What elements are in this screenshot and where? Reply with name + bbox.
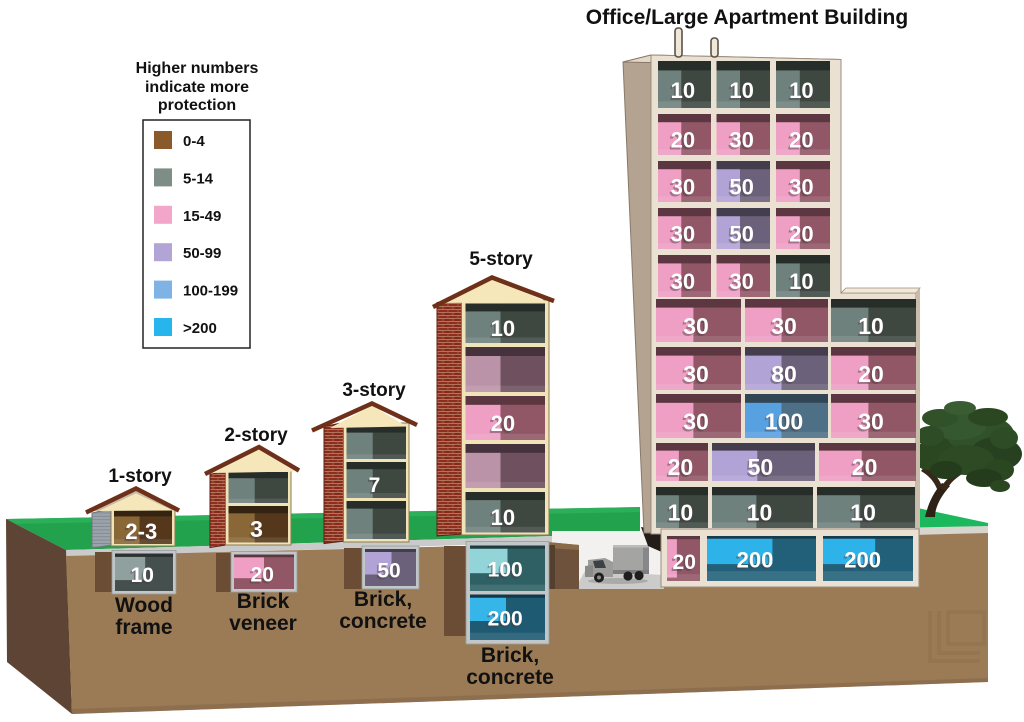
svg-text:10: 10 xyxy=(668,500,694,526)
svg-text:Brick,: Brick, xyxy=(481,644,539,667)
svg-text:2-3: 2-3 xyxy=(125,519,157,544)
svg-text:200: 200 xyxy=(844,547,881,572)
svg-text:10: 10 xyxy=(850,500,876,526)
svg-text:7: 7 xyxy=(369,474,381,497)
svg-text:5-story: 5-story xyxy=(469,249,533,270)
svg-text:20: 20 xyxy=(668,454,694,480)
svg-text:10: 10 xyxy=(729,78,753,103)
svg-text:10: 10 xyxy=(131,564,154,587)
svg-text:Office/Large Apartment Buildin: Office/Large Apartment Building xyxy=(586,6,908,29)
svg-text:20: 20 xyxy=(852,454,878,480)
svg-text:1-story: 1-story xyxy=(108,466,172,487)
svg-text:10: 10 xyxy=(491,505,515,530)
svg-text:>200: >200 xyxy=(183,320,217,337)
svg-text:30: 30 xyxy=(683,361,709,387)
svg-text:3-story: 3-story xyxy=(342,380,406,401)
svg-text:20: 20 xyxy=(789,221,813,246)
svg-text:10: 10 xyxy=(789,269,813,294)
svg-text:Higher numbers: Higher numbers xyxy=(136,60,259,77)
svg-text:200: 200 xyxy=(737,547,774,572)
svg-text:200: 200 xyxy=(488,608,523,631)
svg-text:30: 30 xyxy=(683,313,709,339)
svg-text:50: 50 xyxy=(729,174,753,199)
svg-text:10: 10 xyxy=(671,78,695,103)
svg-text:100: 100 xyxy=(488,559,523,582)
svg-text:20: 20 xyxy=(491,411,515,436)
svg-text:80: 80 xyxy=(771,361,797,387)
svg-text:10: 10 xyxy=(747,500,773,526)
svg-text:50: 50 xyxy=(729,221,753,246)
svg-text:Brick: Brick xyxy=(237,590,290,613)
svg-text:30: 30 xyxy=(671,174,695,199)
svg-text:veneer: veneer xyxy=(229,612,297,635)
svg-text:10: 10 xyxy=(789,78,813,103)
svg-text:30: 30 xyxy=(789,174,813,199)
svg-text:10: 10 xyxy=(491,316,515,341)
svg-text:50-99: 50-99 xyxy=(183,245,221,262)
svg-text:5-14: 5-14 xyxy=(183,170,214,187)
svg-text:15-49: 15-49 xyxy=(183,208,221,225)
svg-text:concrete: concrete xyxy=(466,666,554,689)
svg-text:2-story: 2-story xyxy=(224,425,288,446)
svg-text:20: 20 xyxy=(858,361,884,387)
svg-text:50: 50 xyxy=(377,559,400,582)
svg-text:50: 50 xyxy=(748,454,774,480)
svg-text:30: 30 xyxy=(858,409,884,435)
svg-text:30: 30 xyxy=(729,269,753,294)
svg-text:20: 20 xyxy=(671,127,695,152)
svg-text:10: 10 xyxy=(858,313,884,339)
svg-text:30: 30 xyxy=(671,221,695,246)
svg-text:0-4: 0-4 xyxy=(183,133,205,150)
svg-text:100: 100 xyxy=(765,409,803,435)
svg-text:30: 30 xyxy=(683,409,709,435)
svg-text:frame: frame xyxy=(115,616,172,639)
svg-text:100-199: 100-199 xyxy=(183,283,238,300)
svg-text:20: 20 xyxy=(251,563,274,586)
svg-text:30: 30 xyxy=(729,127,753,152)
svg-text:20: 20 xyxy=(673,551,696,574)
svg-text:30: 30 xyxy=(671,269,695,294)
svg-text:protection: protection xyxy=(158,97,236,114)
svg-text:3: 3 xyxy=(250,516,263,542)
svg-text:indicate more: indicate more xyxy=(145,79,249,96)
svg-text:concrete: concrete xyxy=(339,610,427,633)
svg-text:Brick,: Brick, xyxy=(354,588,412,611)
svg-text:Wood: Wood xyxy=(115,594,173,617)
svg-text:30: 30 xyxy=(771,313,797,339)
svg-text:20: 20 xyxy=(789,127,813,152)
